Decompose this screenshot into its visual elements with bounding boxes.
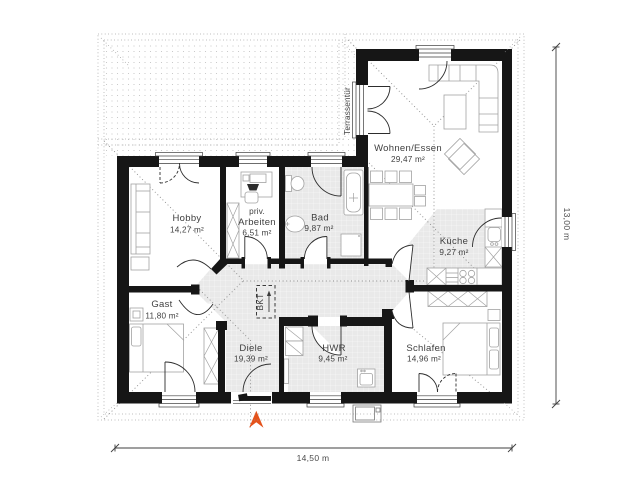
svg-text:Terrassentür: Terrassentür	[343, 87, 352, 135]
svg-text:Hobby: Hobby	[173, 213, 202, 224]
svg-text:19,39 m²: 19,39 m²	[234, 355, 268, 364]
svg-text:Wohnen/Essen: Wohnen/Essen	[374, 143, 442, 154]
svg-text:29,47 m²: 29,47 m²	[391, 155, 425, 164]
svg-text:13,00 m: 13,00 m	[562, 208, 572, 241]
svg-text:priv.: priv.	[249, 207, 265, 216]
svg-text:9,87 m²: 9,87 m²	[304, 224, 333, 233]
svg-text:11,80 m²: 11,80 m²	[145, 312, 178, 321]
svg-text:Diele: Diele	[239, 343, 262, 354]
svg-text:HWR: HWR	[322, 343, 346, 354]
svg-text:14,50 m: 14,50 m	[297, 453, 330, 463]
svg-text:14,96 m²: 14,96 m²	[407, 355, 441, 364]
svg-text:Bad: Bad	[311, 213, 329, 224]
svg-text:Arbeiten: Arbeiten	[238, 217, 276, 228]
svg-text:9,45 m²: 9,45 m²	[318, 355, 347, 364]
svg-text:Gast: Gast	[151, 299, 172, 310]
svg-text:9,27 m²: 9,27 m²	[439, 248, 468, 257]
svg-text:BKT: BKT	[255, 293, 265, 310]
svg-text:Schlafen: Schlafen	[406, 343, 445, 354]
svg-text:Küche: Küche	[440, 236, 468, 247]
svg-text:6,51 m²: 6,51 m²	[242, 229, 271, 238]
svg-text:14,27 m²: 14,27 m²	[170, 226, 204, 235]
